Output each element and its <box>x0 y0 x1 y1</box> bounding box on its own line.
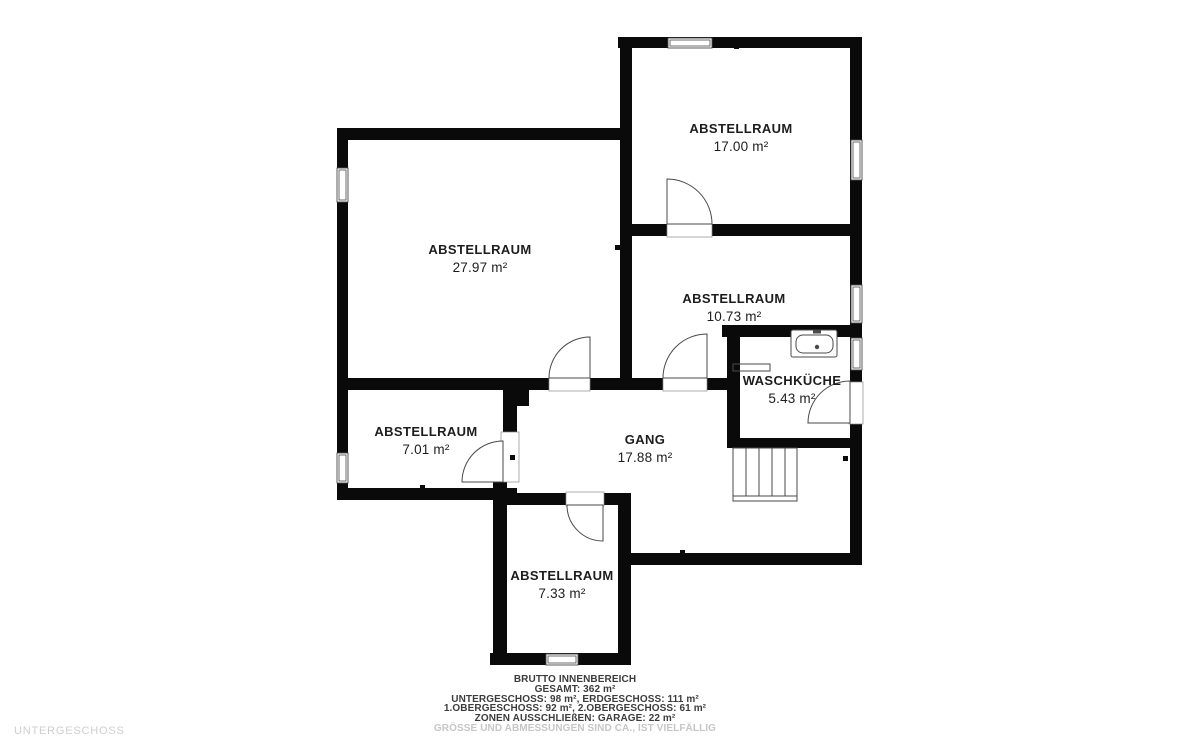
room-label-abstellraum-27: ABSTELLRAUM 27.97 m² <box>428 242 531 275</box>
door-arc <box>663 334 707 378</box>
room-area: 5.43 m² <box>768 391 815 406</box>
room-area: 17.88 m² <box>618 450 673 465</box>
room-area: 27.97 m² <box>453 260 508 275</box>
room-label-abstellraum-10: ABSTELLRAUM 10.73 m² <box>682 291 785 324</box>
room-name: ABSTELLRAUM <box>374 424 477 439</box>
room-area: 7.01 m² <box>402 442 449 457</box>
room-name: WASCHKÜCHE <box>743 373 842 388</box>
window-icon <box>546 654 578 665</box>
window-icon <box>851 285 862 323</box>
room-name: ABSTELLRAUM <box>682 291 785 306</box>
floor-label: UNTERGESCHOSS <box>14 725 125 737</box>
room-label-gang: GANG 17.88 m² <box>618 432 673 465</box>
window-icon <box>337 453 348 483</box>
window-icon <box>851 338 862 370</box>
door-arc <box>667 179 712 224</box>
room-area: 7.33 m² <box>538 586 585 601</box>
floorplan-page: ABSTELLRAUM 17.00 m² ABSTELLRAUM 27.97 m… <box>0 0 1200 751</box>
room-label-abstellraum-17: ABSTELLRAUM 17.00 m² <box>689 121 792 154</box>
door-arc <box>462 441 503 482</box>
sink-icon <box>791 330 837 357</box>
room-name: ABSTELLRAUM <box>428 242 531 257</box>
window-icon <box>337 168 348 202</box>
room-label-abstellraum-7-01: ABSTELLRAUM 7.01 m² <box>374 424 477 457</box>
stairs-icon <box>733 448 797 501</box>
door-arc <box>549 337 590 378</box>
room-name: ABSTELLRAUM <box>689 121 792 136</box>
room-area: 17.00 m² <box>714 139 769 154</box>
summary-disclaimer: GRÖSSE UND ABMESSUNGEN SIND CA., IST VIE… <box>175 724 975 734</box>
room-name: GANG <box>625 432 666 447</box>
room-name: ABSTELLRAUM <box>510 568 613 583</box>
door-arc <box>567 505 603 541</box>
area-summary: BRUTTO INNENBEREICH GESAMT: 362 m² UNTER… <box>175 675 975 734</box>
floorplan-drawing: ABSTELLRAUM 17.00 m² ABSTELLRAUM 27.97 m… <box>0 0 1200 751</box>
room-label-abstellraum-7-33: ABSTELLRAUM 7.33 m² <box>510 568 613 601</box>
window-icon <box>851 140 862 180</box>
window-icon <box>668 38 712 48</box>
room-area: 10.73 m² <box>707 309 762 324</box>
